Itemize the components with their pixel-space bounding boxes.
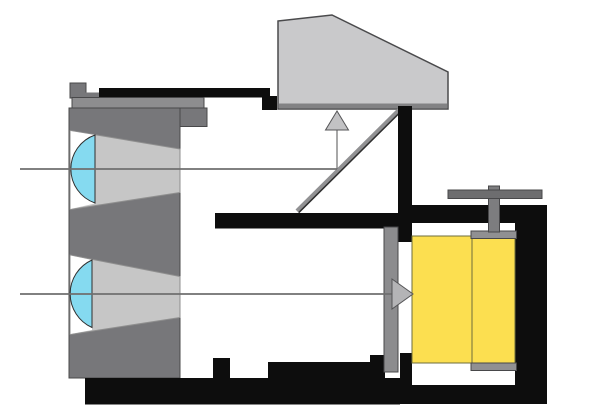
mirror [297, 110, 399, 211]
body-right-wall [515, 205, 547, 404]
prism-base-plate [279, 104, 447, 109]
body-top-plate [99, 88, 270, 98]
takeup-spool [472, 238, 515, 363]
up-arrow-icon [326, 111, 349, 130]
mirror-back-edge [299, 112, 401, 213]
internal-divider [215, 213, 412, 229]
base-bump-right [370, 355, 385, 379]
viewfinder-prism [278, 15, 448, 109]
base-bump-left [213, 358, 230, 379]
film-gate-wall-lower [400, 353, 412, 385]
winding-knob [448, 190, 542, 199]
diagram-canvas [0, 0, 600, 420]
body-base-left [85, 378, 400, 405]
right-arrow-icon [392, 279, 413, 309]
base-platform [268, 362, 370, 379]
barrel-top-tab [70, 83, 86, 98]
camera-cross-section-diagram [0, 0, 600, 420]
body-base-right [398, 385, 547, 404]
spool-cap-bottom [471, 363, 517, 371]
body-top-notch [262, 96, 277, 110]
film-roll [412, 236, 472, 363]
barrel-mount-plate [72, 98, 204, 109]
